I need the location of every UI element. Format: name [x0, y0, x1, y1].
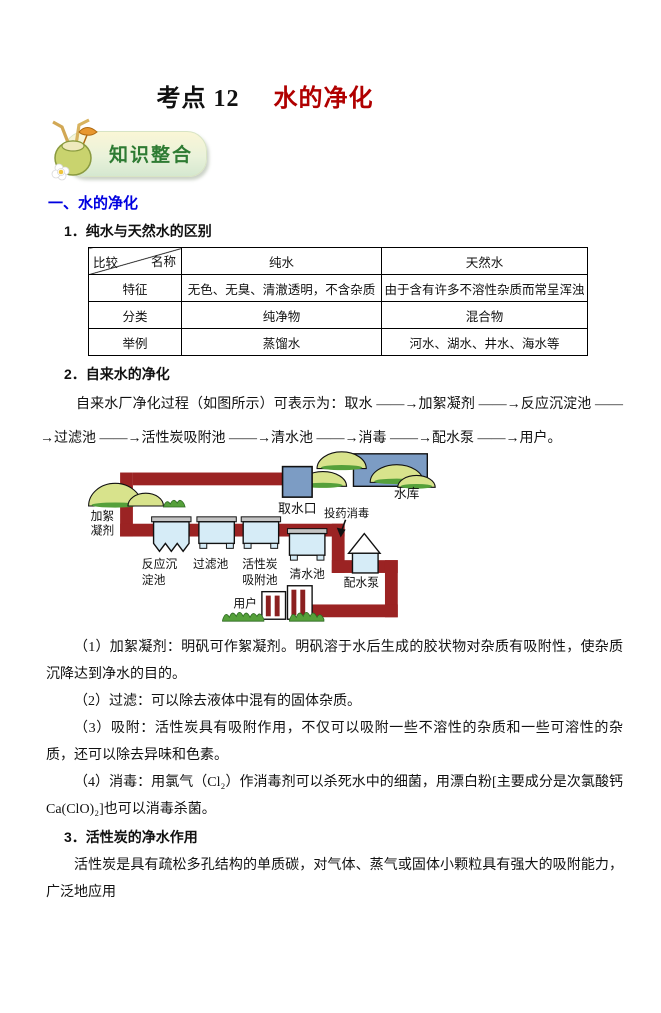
row-header: 分类 [89, 302, 182, 329]
row-header: 举例 [89, 329, 182, 356]
cell-natural-category: 混合物 [382, 302, 588, 329]
dosing-label: 投药消毒 [324, 506, 369, 520]
column-header-natural-water: 天然水 [382, 248, 588, 275]
activated-carbon-paragraph: 活性炭是具有疏松多孔结构的单质碳，对气体、蒸气或固体小颗粒具有强大的吸附能力，广… [46, 852, 623, 906]
clean-water-label: 清水池 [289, 567, 325, 581]
intake-box [283, 467, 313, 498]
clean-water-tank [287, 529, 326, 561]
point-disinfection: （4）消毒：用氯气（Cl₂）作消毒剂可以杀死水中的细菌，用漂白粉[主要成分是次氯… [46, 769, 623, 823]
row-header: 特征 [89, 275, 182, 302]
carbon-label-line2: 吸附池 [242, 573, 278, 587]
title-prefix: 考点 12 [157, 86, 240, 112]
section-heading-water-purification: 一、水的净化 [48, 192, 661, 213]
sub-heading-2: 2．自来水的净化 [64, 364, 661, 384]
table-row: 特征 无色、无臭、清澈透明，不含杂质 由于含有许多不溶性杂质而常呈浑浊 [89, 275, 588, 302]
title-topic: 水的净化 [274, 86, 374, 112]
filter-label: 过滤池 [193, 557, 229, 571]
reservoir-label: 水库 [394, 486, 420, 501]
cell-pure-example: 蒸馏水 [182, 329, 382, 356]
sub-heading-3: 3．活性炭的净水作用 [64, 827, 661, 847]
corner-label-compare: 比较 [93, 252, 118, 271]
cell-natural-feature: 由于含有许多不溶性杂质而常呈浑浊 [382, 275, 588, 302]
intake-label: 取水口 [278, 501, 316, 516]
sub-heading-1: 1．纯水与天然水的区别 [64, 221, 661, 241]
sedimentation-label-line1: 反应沉 [142, 557, 178, 571]
flocculant-label-line1: 加絮 [91, 509, 115, 523]
point-filtration: （2）过滤：可以除去液体中混有的固体杂质。 [46, 688, 623, 715]
table-row: 分类 纯净物 混合物 [89, 302, 588, 329]
point-flocculant: （1）加絮凝剂：明矾可作絮凝剂。明矾溶于水后生成的胶状物对杂质有吸附性，使杂质沉… [46, 634, 623, 688]
cell-pure-feature: 无色、无臭、清澈透明，不含杂质 [182, 275, 382, 302]
cell-pure-category: 纯净物 [182, 302, 382, 329]
point-adsorption: （3）吸附：活性炭具有吸附作用，不仅可以吸附一些不溶性的杂质和一些可溶性的杂质，… [46, 715, 623, 769]
knowledge-badge: 知识整合 [57, 127, 205, 174]
sedimentation-tank [152, 517, 191, 551]
corner-label-name: 名称 [151, 251, 176, 270]
carbon-label-line1: 活性炭 [242, 557, 278, 571]
distribution-pump [349, 534, 381, 573]
pump-label: 配水泵 [344, 576, 380, 590]
coconut-icon [49, 115, 103, 183]
water-plant-diagram: 水库 取水口 加絮 凝剂 投药消毒 反应沉 淀 [70, 442, 440, 634]
table-row: 举例 蒸馏水 河水、湖水、井水、海水等 [89, 329, 588, 356]
cell-natural-example: 河水、湖水、井水、海水等 [382, 329, 588, 356]
sedimentation-label-line2: 淀池 [142, 573, 166, 587]
users-label: 用户 [233, 596, 257, 610]
water-plant-diagram-svg: 水库 取水口 加絮 凝剂 投药消毒 反应沉 淀 [70, 442, 440, 634]
page-title: 考点 12水的净化 [0, 78, 530, 113]
badge-label: 知识整合 [109, 140, 193, 167]
table-header-row: 名称 比较 纯水 天然水 [89, 248, 588, 275]
flocculant-label-line2: 凝剂 [91, 524, 115, 538]
table-corner-cell: 名称 比较 [89, 248, 182, 275]
flocculant-hills [89, 483, 185, 507]
filter-tank [197, 517, 236, 549]
activated-carbon-tank [241, 517, 280, 549]
pure-vs-natural-water-table: 名称 比较 纯水 天然水 特征 无色、无臭、清澈透明，不含杂质 由于含有许多不溶… [88, 247, 588, 356]
column-header-pure-water: 纯水 [182, 248, 382, 275]
